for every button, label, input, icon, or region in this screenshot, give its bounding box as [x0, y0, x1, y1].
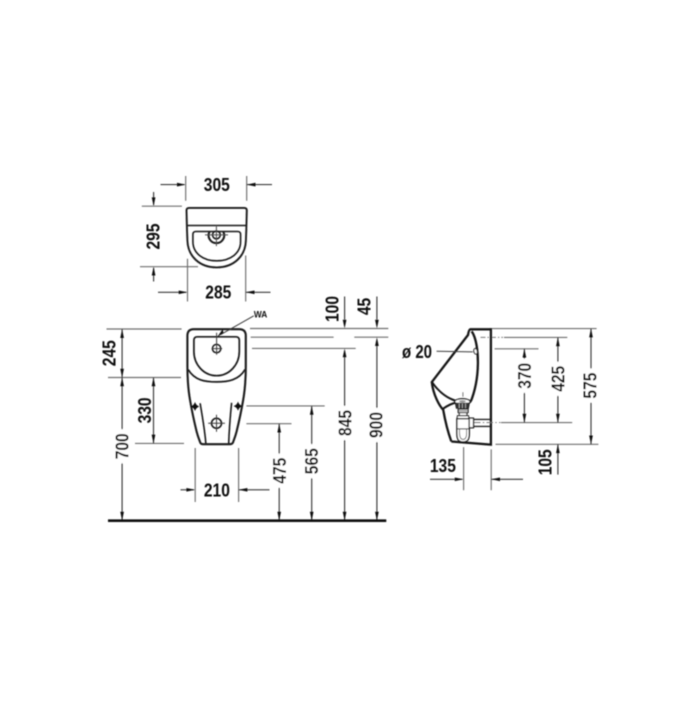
svg-text:900: 900: [366, 412, 387, 438]
svg-text:845: 845: [334, 410, 355, 436]
svg-text:330: 330: [134, 397, 155, 423]
svg-text:700: 700: [111, 433, 132, 459]
svg-text:565: 565: [301, 448, 322, 474]
svg-text:210: 210: [204, 479, 230, 500]
svg-text:45: 45: [354, 298, 375, 315]
svg-text:575: 575: [580, 373, 601, 399]
svg-text:135: 135: [430, 455, 456, 476]
svg-text:105: 105: [535, 449, 556, 475]
svg-text:WA: WA: [254, 309, 268, 319]
svg-text:305: 305: [204, 174, 230, 195]
svg-text:285: 285: [205, 282, 231, 303]
svg-text:295: 295: [142, 224, 163, 250]
svg-text:370: 370: [514, 363, 535, 389]
svg-text:245: 245: [99, 340, 120, 366]
svg-text:425: 425: [548, 366, 569, 392]
svg-text:100: 100: [321, 296, 342, 322]
svg-text:475: 475: [269, 458, 290, 484]
svg-text:ø 20: ø 20: [402, 341, 432, 362]
